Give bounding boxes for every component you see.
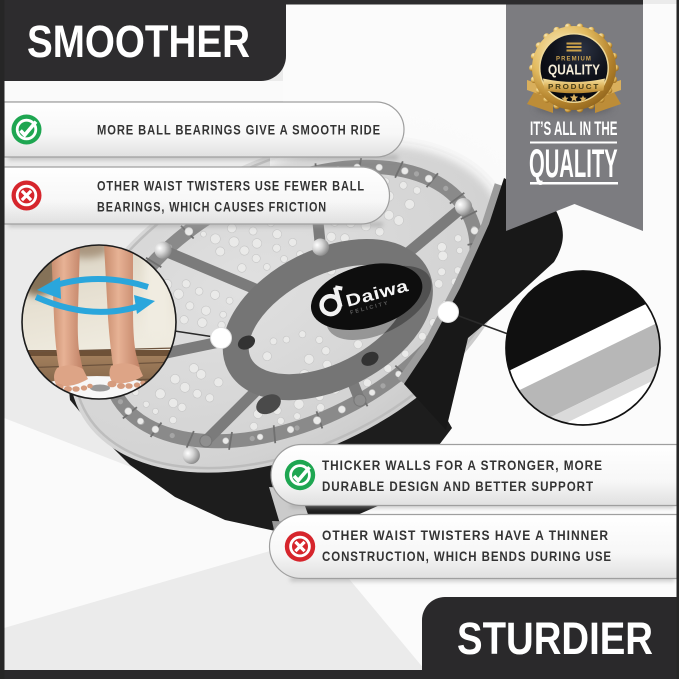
svg-text:SMOOTHER: SMOOTHER <box>27 16 250 67</box>
svg-text:THICKER WALLS FOR A STRONGER,: THICKER WALLS FOR A STRONGER, MORE <box>322 458 603 473</box>
svg-text:STURDIER: STURDIER <box>457 613 653 664</box>
svg-text:OTHER WAIST TWISTERS USE FEWER: OTHER WAIST TWISTERS USE FEWER BALL <box>97 179 365 194</box>
svg-text:BEARINGS, WHICH CAUSES FRICTIO: BEARINGS, WHICH CAUSES FRICTION <box>97 200 327 215</box>
svg-text:PREMIUM: PREMIUM <box>556 56 592 63</box>
svg-text:IT’S ALL IN THE: IT’S ALL IN THE <box>530 119 617 139</box>
svg-text:QUALITY: QUALITY <box>548 63 600 79</box>
svg-text:OTHER WAIST TWISTERS HAVE A TH: OTHER WAIST TWISTERS HAVE A THINNER <box>322 528 609 543</box>
svg-text:PRODUCT: PRODUCT <box>548 84 600 91</box>
svg-text:QUALITY: QUALITY <box>529 142 618 186</box>
svg-text:CONSTRUCTION, WHICH BENDS DURI: CONSTRUCTION, WHICH BENDS DURING USE <box>322 549 612 564</box>
svg-text:DURABLE DESIGN AND BETTER SUPP: DURABLE DESIGN AND BETTER SUPPORT <box>322 479 594 494</box>
svg-text:MORE BALL BEARINGS GIVE A SMOO: MORE BALL BEARINGS GIVE A SMOOTH RIDE <box>97 123 381 138</box>
